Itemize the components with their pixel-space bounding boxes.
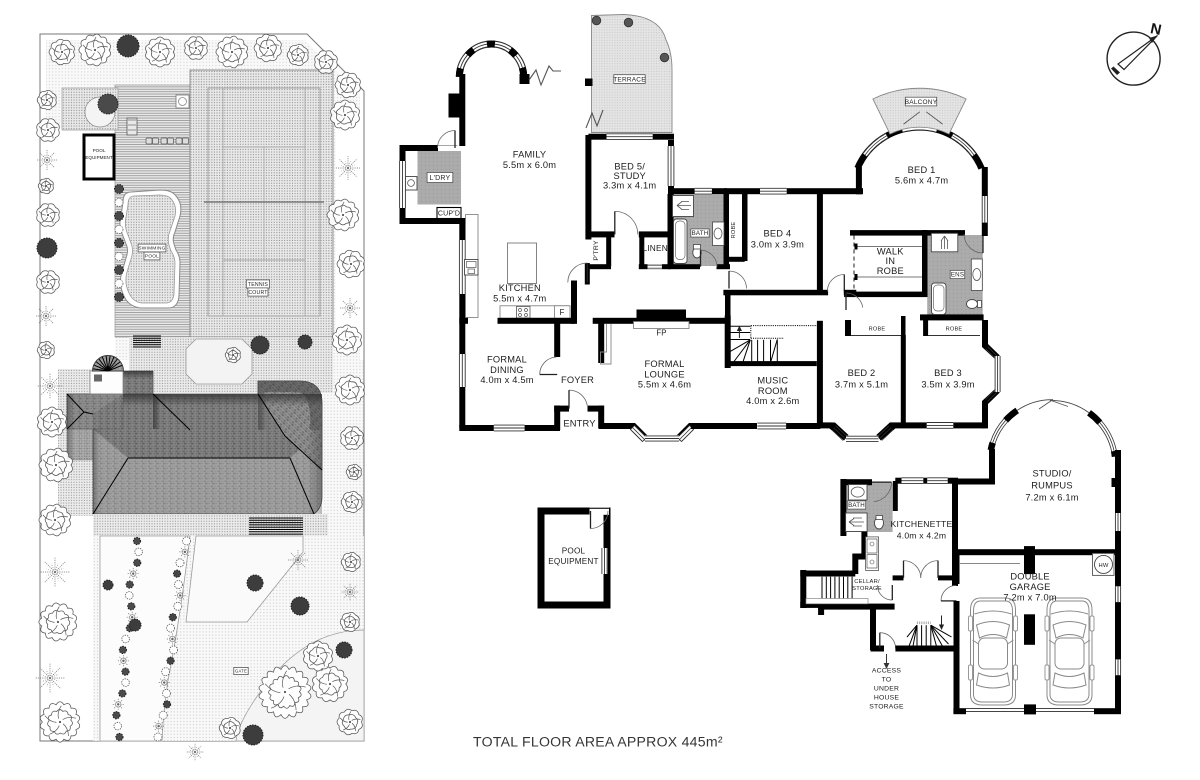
svg-text:POOL: POOL [145, 254, 159, 260]
svg-text:4.0m x 4.2m: 4.0m x 4.2m [897, 531, 946, 541]
svg-text:DOUBLE: DOUBLE [1010, 572, 1049, 582]
svg-text:3.7m x 5.1m: 3.7m x 5.1m [835, 380, 888, 390]
svg-text:L'DRY: L'DRY [430, 175, 451, 182]
svg-text:P'TRY: P'TRY [593, 240, 600, 261]
svg-text:ROBE: ROBE [946, 327, 963, 333]
svg-text:4.0m x 2.6m: 4.0m x 2.6m [746, 396, 799, 406]
svg-text:GARAGE: GARAGE [1010, 582, 1051, 592]
svg-text:BED 5/: BED 5/ [614, 162, 645, 172]
svg-text:EQUIPMENT: EQUIPMENT [548, 557, 598, 566]
svg-text:MUSIC: MUSIC [757, 376, 788, 386]
svg-text:HW: HW [1098, 563, 1108, 569]
svg-text:STUDY: STUDY [613, 171, 646, 181]
svg-text:ENTRY: ENTRY [563, 419, 595, 429]
svg-text:DINING: DINING [490, 365, 524, 375]
svg-text:TO: TO [882, 677, 892, 684]
svg-text:7.2m x 7.0m: 7.2m x 7.0m [1003, 593, 1056, 603]
svg-text:BED 4: BED 4 [763, 229, 791, 239]
svg-text:FORMAL: FORMAL [487, 355, 527, 365]
svg-text:BATH: BATH [848, 502, 865, 509]
svg-text:3.5m x 3.9m: 3.5m x 3.9m [921, 380, 974, 390]
svg-text:BATH: BATH [692, 230, 709, 237]
svg-text:POOL: POOL [562, 547, 586, 556]
svg-text:FOYER: FOYER [561, 375, 594, 385]
svg-text:TENNIS: TENNIS [248, 282, 269, 288]
svg-text:HOUSE: HOUSE [874, 695, 899, 702]
svg-text:IN: IN [885, 256, 895, 266]
svg-text:KITCHEN: KITCHEN [499, 283, 541, 293]
svg-text:ROBE: ROBE [731, 222, 737, 239]
svg-text:BALCONY: BALCONY [905, 99, 938, 106]
svg-text:GATE: GATE [235, 669, 247, 674]
svg-text:TERRACE: TERRACE [613, 76, 646, 83]
svg-text:COURT: COURT [248, 290, 268, 296]
svg-text:FORMAL: FORMAL [645, 359, 685, 369]
svg-text:ACCESS: ACCESS [872, 668, 901, 675]
svg-text:ROBE: ROBE [877, 266, 904, 276]
svg-text:5.5m x 6.0m: 5.5m x 6.0m [503, 160, 556, 170]
svg-text:7.2m x 6.1m: 7.2m x 6.1m [1025, 493, 1078, 503]
svg-text:BED 2: BED 2 [848, 368, 876, 378]
svg-text:CELLAR/: CELLAR/ [854, 579, 880, 585]
svg-text:KITCHENETTE: KITCHENETTE [891, 519, 953, 529]
svg-text:5.6m x 4.7m: 5.6m x 4.7m [895, 176, 948, 186]
svg-text:FP: FP [656, 329, 666, 338]
svg-text:WALK: WALK [877, 247, 904, 257]
svg-text:3.3m x 4.1m: 3.3m x 4.1m [603, 181, 656, 191]
svg-text:POOL: POOL [93, 148, 106, 153]
svg-text:BED 3: BED 3 [934, 368, 962, 378]
svg-text:LINEN: LINEN [642, 243, 667, 253]
svg-text:4.0m x 4.5m: 4.0m x 4.5m [480, 375, 533, 385]
svg-text:3.0m x 3.9m: 3.0m x 3.9m [751, 240, 804, 250]
svg-text:TOTAL FLOOR AREA APPROX 445m²: TOTAL FLOOR AREA APPROX 445m² [473, 734, 723, 750]
svg-text:RUMPUS: RUMPUS [1031, 481, 1073, 491]
svg-text:FAMILY: FAMILY [513, 150, 547, 160]
svg-text:5.5m x 4.6m: 5.5m x 4.6m [638, 380, 691, 390]
svg-text:LOUNGE: LOUNGE [644, 369, 684, 379]
svg-text:STORAGE: STORAGE [869, 704, 904, 711]
svg-text:ROBE: ROBE [869, 327, 886, 333]
svg-text:F: F [559, 308, 564, 317]
svg-text:ENS: ENS [951, 272, 964, 279]
svg-text:ROOM: ROOM [758, 386, 788, 396]
svg-text:BED 1: BED 1 [908, 165, 936, 175]
svg-text:EQUIPMENT: EQUIPMENT [85, 155, 113, 160]
svg-text:UNDER: UNDER [874, 686, 899, 693]
svg-text:CUP'D: CUP'D [438, 211, 460, 218]
svg-text:STUDIO/: STUDIO/ [1032, 469, 1071, 479]
svg-text:5.5m x 4.7m: 5.5m x 4.7m [493, 293, 546, 303]
svg-text:SWIMMING: SWIMMING [138, 246, 165, 252]
